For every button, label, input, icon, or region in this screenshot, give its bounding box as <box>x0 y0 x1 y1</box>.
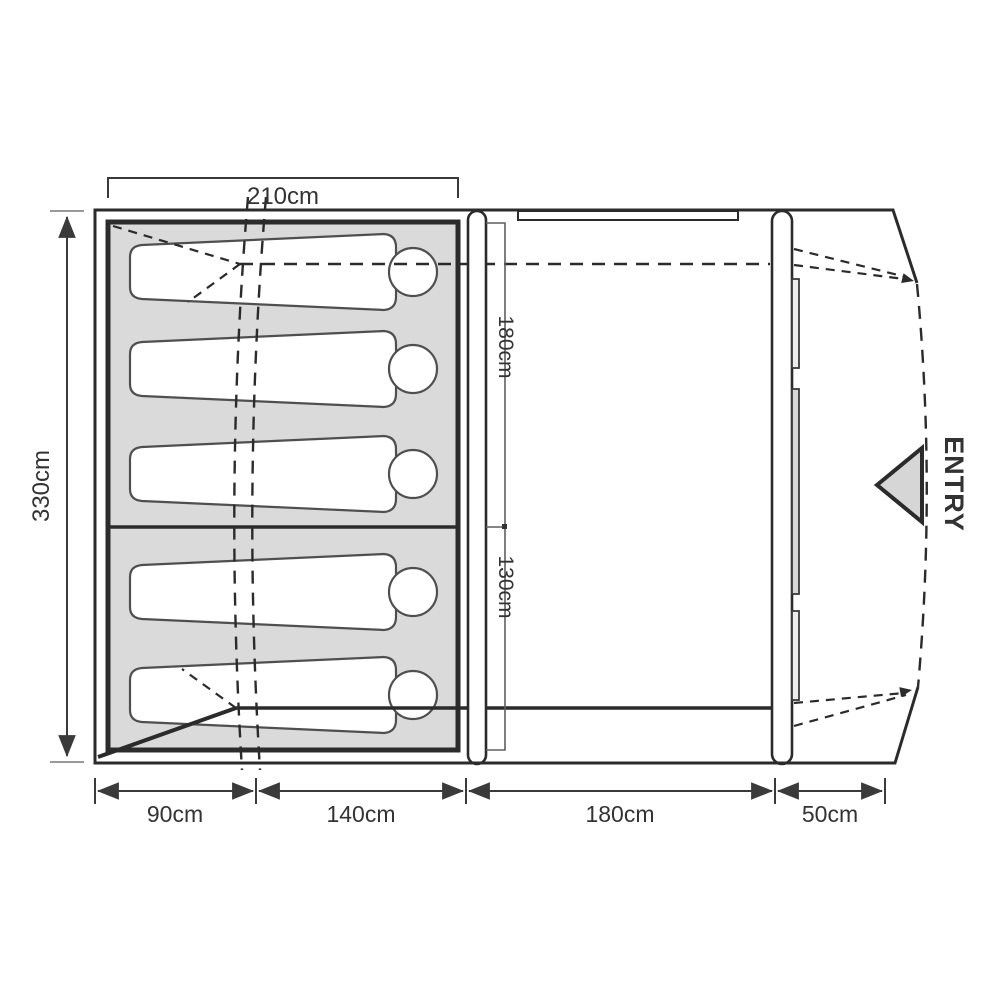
sleeper-silhouette-2 <box>130 331 437 407</box>
dimension-bottom-segments: 90cm 140cm 180cm 50cm <box>95 778 885 827</box>
center-air-pole <box>468 211 486 764</box>
front-air-pole <box>772 211 792 764</box>
left-height-label: 330cm <box>28 450 55 522</box>
door-zip-panel-top <box>792 279 799 368</box>
entry-label: ENTRY <box>939 436 969 532</box>
bottom-label-2: 140cm <box>326 801 395 827</box>
dimension-inner-sections: 180cm 130cm <box>486 223 517 750</box>
sleeping-compartment <box>108 222 458 750</box>
bottom-label-1: 90cm <box>147 801 203 827</box>
floorplan-canvas: ENTRY 210cm 330cm 180cm 130cm 90cm 140cm… <box>0 0 1000 1000</box>
dimension-left-height: 330cm <box>28 211 84 762</box>
door-swing-dash-bottom-2 <box>794 695 906 726</box>
top-width-label: 210cm <box>247 183 319 210</box>
tent-floorplan-diagram: ENTRY 210cm 330cm 180cm 130cm 90cm 140cm… <box>0 0 1000 1000</box>
door-swing-arrow-bottom <box>899 685 913 697</box>
bottom-label-4: 50cm <box>802 801 858 827</box>
door-swing-dash-bottom-1 <box>794 693 904 703</box>
entry-marker: ENTRY <box>877 436 969 532</box>
sleeper-silhouette-3 <box>130 436 437 512</box>
door-zip-panel-bottom <box>792 611 799 700</box>
sleeper-silhouette-5 <box>130 657 437 733</box>
entry-arrow-triangle <box>877 448 922 522</box>
inner-lower-label: 130cm <box>494 555 517 618</box>
top-vent-window-bar <box>518 211 738 220</box>
inner-bracket <box>486 223 505 750</box>
inner-bracket-dot <box>502 524 507 529</box>
door-zip-panel-middle <box>792 389 799 594</box>
sleeper-silhouette-4 <box>130 554 437 630</box>
inner-upper-label: 180cm <box>494 315 517 378</box>
poles-and-panels <box>468 211 799 764</box>
dimension-top-width: 210cm <box>108 178 458 210</box>
bottom-label-3: 180cm <box>585 801 654 827</box>
